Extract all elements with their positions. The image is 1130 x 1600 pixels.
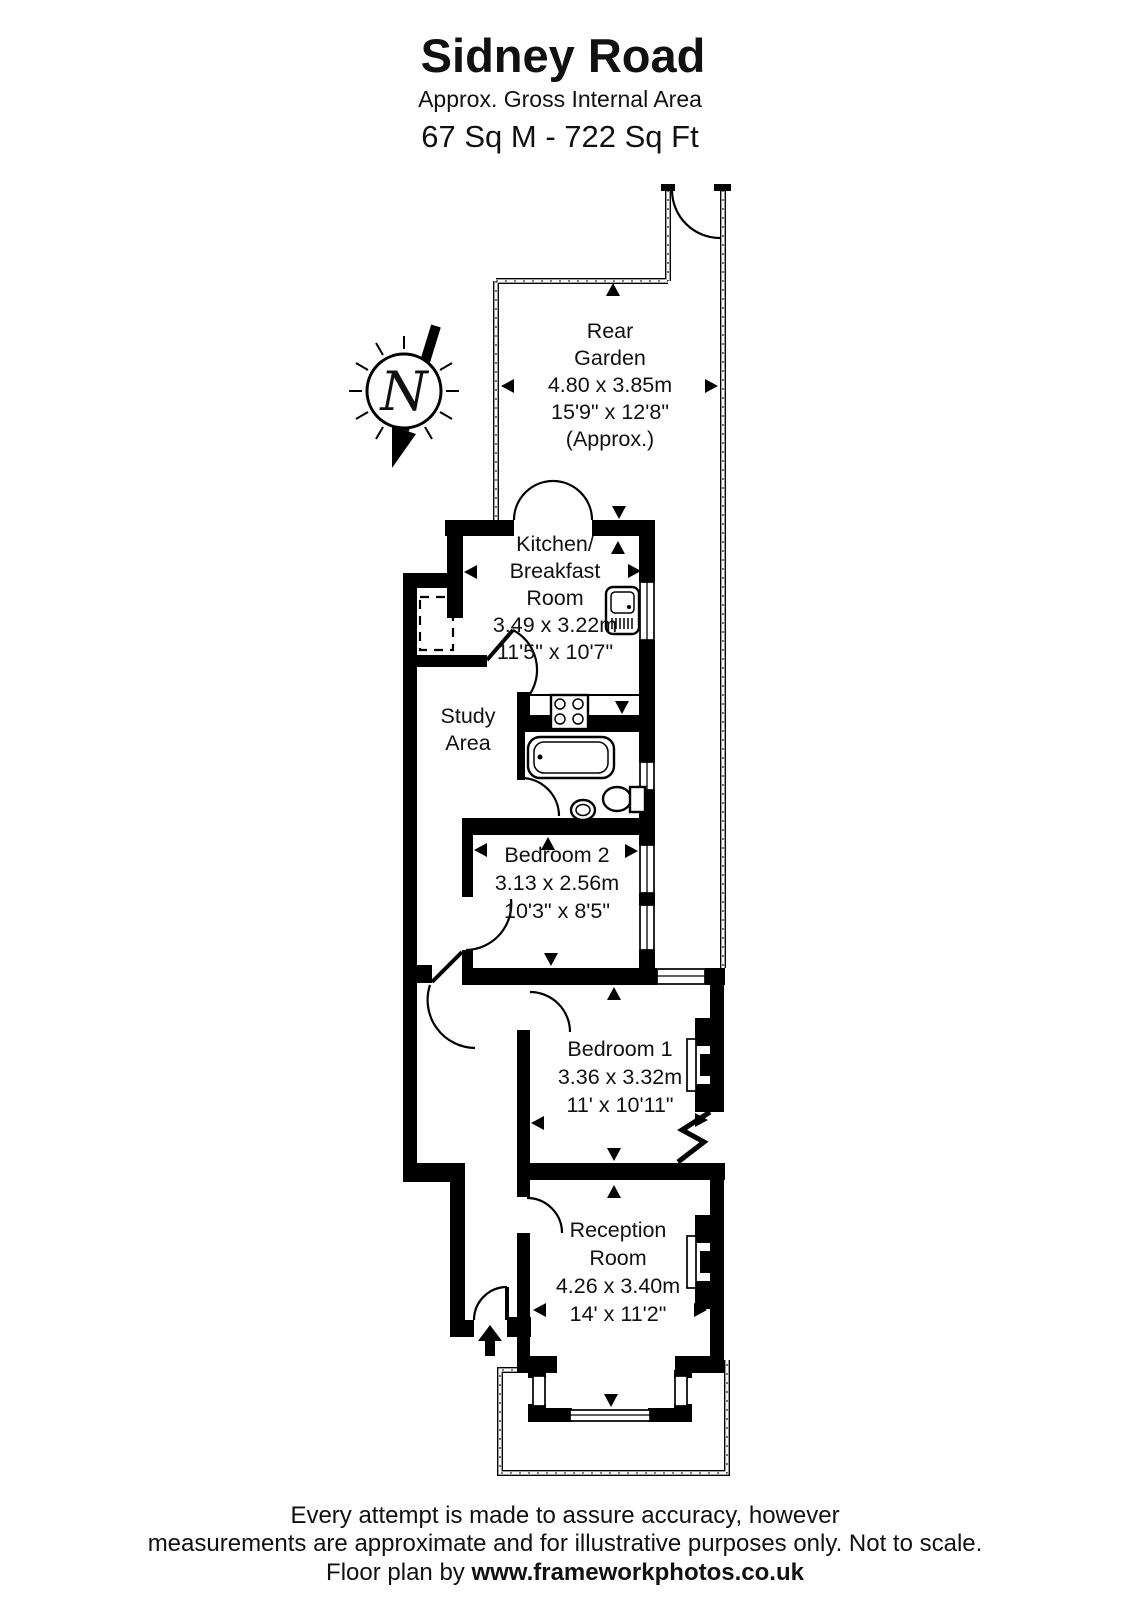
rear-garden-label: Rear Garden 4.80 x 3.85m 15'9" x 12'8" (… — [548, 319, 672, 451]
kitchen-dims-ft: 11'5" x 10'7" — [497, 640, 613, 664]
floorplan-page: Sidney Road Approx. Gross Internal Area … — [0, 0, 1130, 1600]
study-name-2: Area — [445, 731, 490, 755]
reception-name-1: Reception — [570, 1218, 667, 1242]
page-title: Sidney Road — [421, 29, 706, 82]
page-area: 67 Sq M - 722 Sq Ft — [421, 119, 699, 154]
north-compass-icon: N — [349, 326, 459, 468]
rear-garden-dims-m: 4.80 x 3.85m — [548, 373, 672, 397]
bathroom-window — [640, 762, 654, 790]
basin-icon — [571, 800, 595, 820]
footer-line2: measurements are approximate and for ill… — [148, 1530, 983, 1557]
bathroom-door — [521, 778, 559, 816]
reception-label: Reception Room 4.26 x 3.40m 14' x 11'2" — [556, 1218, 680, 1326]
kitchen-window — [640, 582, 654, 640]
reception-dims-m: 4.26 x 3.40m — [556, 1274, 680, 1298]
bedroom2-dims-m: 3.13 x 2.56m — [495, 871, 619, 895]
bedroom2-window-2 — [640, 905, 654, 950]
rear-garden-approx: (Approx.) — [566, 427, 654, 451]
study-name-1: Study — [441, 704, 496, 728]
page-subtitle: Approx. Gross Internal Area — [418, 86, 702, 112]
bedroom1-door — [530, 992, 570, 1032]
reception-dims-ft: 14' x 11'2" — [570, 1302, 667, 1326]
footer-disclaimer: Every attempt is made to assure accuracy… — [148, 1502, 983, 1586]
french-doors — [514, 481, 592, 520]
hob-icon — [551, 695, 588, 729]
kitchen-label: Kitchen/ Breakfast Room 3.49 x 3.22m 11'… — [493, 532, 617, 664]
bedroom1-side-window — [687, 1039, 696, 1091]
bedroom2-name: Bedroom 2 — [504, 843, 609, 867]
bedroom2-dims-ft: 10'3" x 8'5" — [504, 899, 610, 923]
kitchen-name-2: Breakfast — [510, 559, 601, 583]
toilet-icon — [603, 787, 645, 812]
reception-name-2: Room — [589, 1246, 646, 1270]
footer-line3: Floor plan by www.frameworkphotos.co.uk — [326, 1559, 805, 1586]
bedroom2-window-1 — [640, 845, 654, 893]
bedroom1-dims-ft: 11' x 10'11" — [566, 1093, 673, 1117]
reception-door — [527, 1198, 562, 1233]
rear-garden-dims-ft: 15'9" x 12'8" — [551, 400, 669, 424]
bedroom1-label: Bedroom 1 3.36 x 3.32m 11' x 10'11" — [558, 1037, 682, 1117]
north-label: N — [378, 360, 429, 423]
floor-plan-svg: Sidney Road Approx. Gross Internal Area … — [0, 0, 1130, 1600]
bedroom1-name: Bedroom 1 — [567, 1037, 672, 1061]
footer-credit-url: www.frameworkphotos.co.uk — [470, 1559, 804, 1586]
kitchen-dims-m: 3.49 x 3.22m — [493, 613, 617, 637]
bay-window-left — [533, 1376, 545, 1406]
kitchen-name-3: Room — [526, 586, 583, 610]
reception-side-window — [687, 1236, 696, 1288]
study-area-label: Study Area — [441, 704, 496, 755]
front-door — [474, 1287, 507, 1320]
bedroom1-dims-m: 3.36 x 3.32m — [558, 1065, 682, 1089]
bay-window-front — [570, 1410, 650, 1421]
title-block: Sidney Road Approx. Gross Internal Area … — [418, 29, 705, 154]
garden-gate-door — [672, 190, 720, 238]
bay-window-right — [675, 1376, 687, 1406]
rear-garden-name-2: Garden — [574, 346, 646, 370]
kitchen-name-1: Kitchen/ — [516, 532, 594, 556]
bedroom1-rear-window — [657, 969, 705, 984]
footer-credit-prefix: Floor plan by — [326, 1559, 471, 1586]
entrance-arrow-icon — [478, 1325, 502, 1356]
bedroom2-label: Bedroom 2 3.13 x 2.56m 10'3" x 8'5" — [495, 843, 619, 923]
bathtub-icon — [528, 737, 614, 778]
footer-line1: Every attempt is made to assure accuracy… — [290, 1502, 839, 1529]
rear-garden-name-1: Rear — [587, 319, 634, 343]
